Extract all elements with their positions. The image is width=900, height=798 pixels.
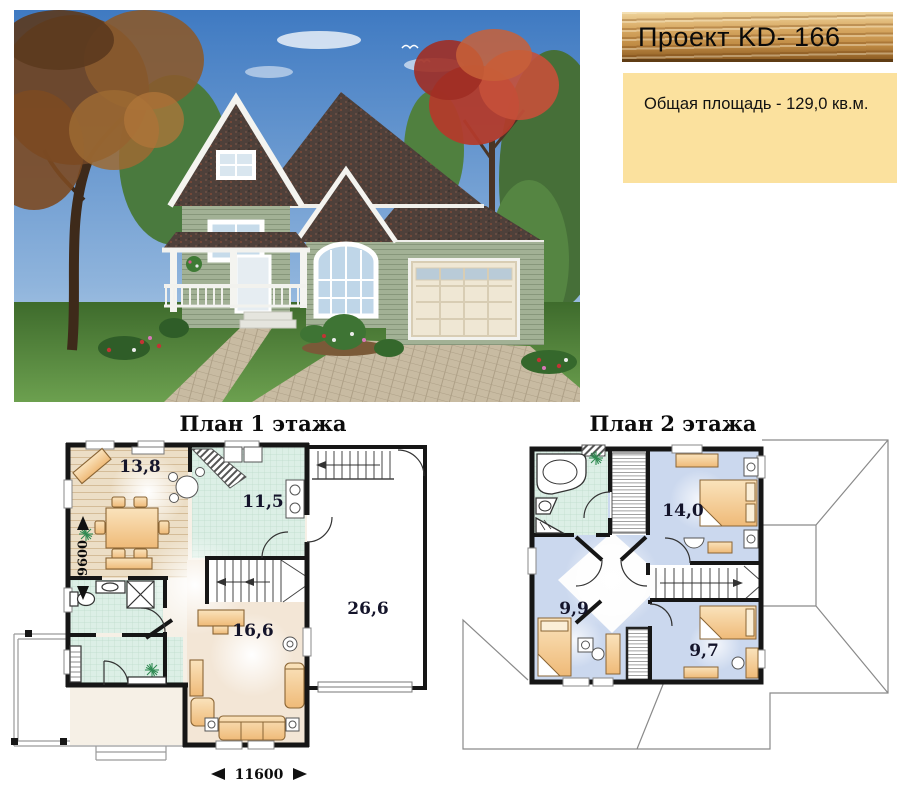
arrow-right-icon xyxy=(293,768,307,780)
stairs-floor1 xyxy=(209,560,307,602)
chimney xyxy=(582,445,605,456)
floor-plans-svg: 13,8 11,5 26,6 16,6 9600 11600 xyxy=(0,430,900,798)
garage-floor xyxy=(309,449,423,686)
total-area-text: Общая площадь - 129,0 кв.м. xyxy=(623,73,897,114)
project-title-banner: Проект KD- 166 xyxy=(622,12,893,62)
garage-area-label: 26,6 xyxy=(347,599,388,619)
hanging-basket xyxy=(186,256,202,272)
garage-door xyxy=(412,262,516,336)
floor2-plan: 14,0 9,9 9,7 xyxy=(528,445,765,686)
depth-dimension-label: 9600 xyxy=(76,540,91,576)
house-illustration xyxy=(14,10,580,402)
project-title: Проект KD- 166 xyxy=(622,12,893,53)
bedroom2-area-label: 9,9 xyxy=(559,599,589,619)
width-dimension: 11600 xyxy=(211,767,307,783)
closet-center xyxy=(627,628,649,680)
kitchen-area-label: 11,5 xyxy=(242,492,283,512)
arched-window xyxy=(316,244,376,316)
arrow-left-icon xyxy=(211,768,225,780)
floor-plans: 13,8 11,5 26,6 16,6 9600 11600 xyxy=(0,430,900,798)
floor1-plan: 13,8 11,5 26,6 16,6 9600 11600 xyxy=(11,441,427,783)
bedroom3-area-label: 9,7 xyxy=(689,641,719,661)
width-dimension-label: 11600 xyxy=(235,767,284,783)
living-area-label: 16,6 xyxy=(232,621,273,641)
house-illustration-svg xyxy=(14,10,580,402)
bedroom1-area-label: 14,0 xyxy=(662,501,704,521)
project-sheet: Проект KD- 166 Общая площадь - 129,0 кв.… xyxy=(0,0,900,798)
total-area-box: Общая площадь - 129,0 кв.м. xyxy=(623,73,897,183)
dining-area-label: 13,8 xyxy=(119,457,160,477)
garage-door-plan xyxy=(318,682,412,692)
closet-top xyxy=(612,453,646,533)
